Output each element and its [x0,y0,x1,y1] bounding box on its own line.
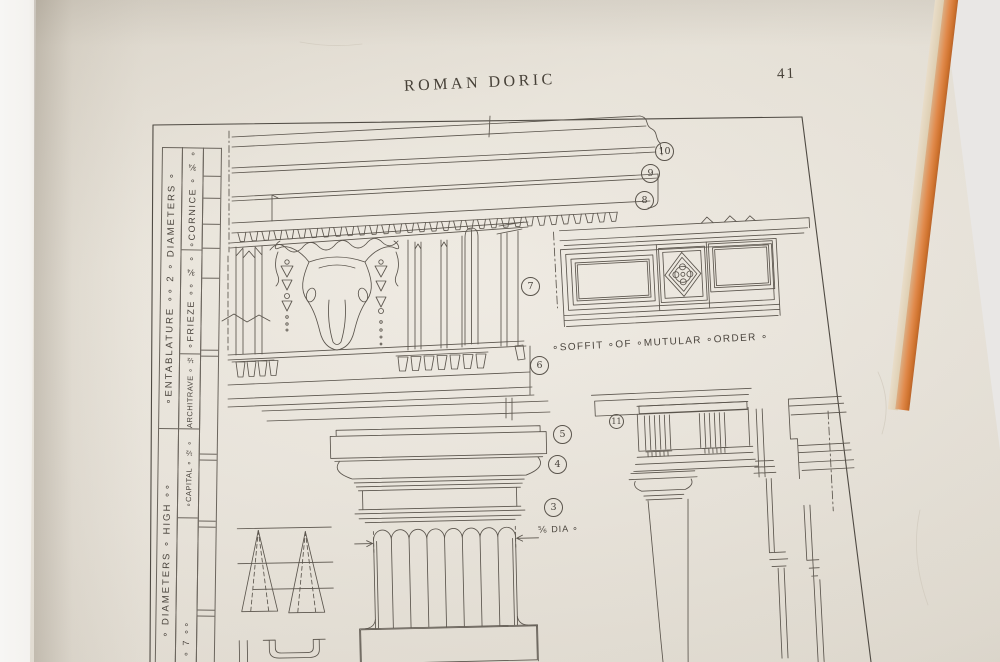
scale-label: ∘SHAFT ∘ 7 ∘∘ [180,620,191,662]
frieze-flat-band [465,228,478,345]
triglyph-right [408,236,462,350]
callout-5: 5 [553,425,572,444]
architrave-right-return [506,346,530,420]
anta-capital [751,408,776,477]
triglyph-channel-profile [239,639,325,662]
callout-8: 8 [635,191,654,210]
edge-order-fragment [788,396,864,662]
plate-border [150,116,871,662]
scale-cell-architrave: ARCHITRAVE ∘ ½ [179,354,200,429]
frieze-drawing [222,222,524,355]
guttae-left [232,360,278,377]
scale-label: ∘CORNICE ∘ ¾ ∘ [187,150,198,248]
callout-9: 9 [641,164,660,183]
plate-border-right [802,117,871,662]
triglyph-left [236,246,262,355]
horn-right [365,241,399,262]
small-capital [629,471,698,501]
lower-shaft-flute-lines [361,626,538,662]
edge-entablature [788,396,854,479]
cymatium-lines [232,116,646,147]
paper-marks [300,42,928,605]
callout-10: 10 [655,142,674,161]
diameter-arrows [355,535,539,547]
capital-drawing [330,426,551,662]
bucranium [270,238,399,350]
cone-rule-lines [237,527,333,590]
coffer-inner [663,250,703,298]
scale-label: ∘ DIAMETERS ∘ HIGH ∘∘ [160,482,173,638]
mutule-guttae-row [232,212,618,242]
small-shaft [648,499,695,662]
scale-label: ∘ENTABLATURE ∘∘ 2 ∘ DIAMETERS ∘ [163,171,177,405]
husk-pendant-left [281,260,293,331]
scale-label: ∘CAPITAL ∘ ½ ∘ [183,440,193,507]
callout-6: 6 [530,356,549,375]
husk-pendant-right [375,260,387,345]
cone-2 [287,531,324,613]
plate-border-left [150,125,153,662]
shaft-diameter-label: ⅚ DIA ∘ [538,523,579,535]
callout-4: 4 [548,455,567,474]
nasal-ridge [319,265,355,345]
fillet-lines [232,147,656,173]
annulets [354,479,524,491]
soffit-bottom-band [564,304,780,326]
lower-shaft-block [360,625,539,662]
guttae-right [396,352,488,371]
scale-cell-capital: ∘CAPITAL ∘ ½ ∘ [178,429,199,518]
coffer-diamond [664,251,702,297]
astragal [355,506,525,523]
regula-end-block [515,345,525,360]
plate-drawing [0,0,1000,662]
scale-cell-frieze: ∘FRIEZE ∘∘ ¾ ∘ [180,250,201,354]
callout-7: 7 [521,277,540,296]
small-triglyph-1 [644,415,670,450]
guttae-cone-diagrams [237,527,334,662]
mutule-right-guttae-dots [715,247,769,286]
soffit-detail-drawing [553,212,814,327]
eye-socket-right [357,287,369,303]
soffit-centerline [553,232,557,308]
skull-brow [309,257,365,262]
skull-outline [303,262,372,350]
flute-lines [374,536,518,628]
cone-2-dashed [296,531,315,612]
small-order-elevation [591,387,792,662]
mutule-left-inner [575,259,651,301]
guttae-teeth [238,212,618,242]
taenia-band [228,341,526,360]
anta-wall [766,478,792,659]
break-zigzag [222,314,270,322]
mutule-right-inner [713,245,771,288]
small-triglyph-2 [699,412,725,447]
photo-of-book-plate: ROMAN DORIC 41 [0,0,1000,662]
scale-strips: ∘ENTABLATURE ∘∘ 2 ∘ DIAMETERS ∘ ∘ DIAMET… [154,147,224,662]
eye-socket-left [305,287,317,303]
cone-1 [240,530,277,612]
scale-label: ARCHITRAVE ∘ ½ [185,355,195,428]
cornice-section-drawing [230,116,662,248]
frieze-corner-band [497,222,524,346]
edge-pier [804,505,824,662]
architrave-fasciae [228,372,534,407]
callout-11: 11 [609,414,624,429]
cone-1-dashed [249,530,268,611]
callout-3: 3 [544,498,563,517]
corona-top-lines [232,174,658,201]
plate-border-top [153,117,802,125]
scale-cell-shaft: ∘SHAFT ∘ 7 ∘∘ [175,518,198,662]
scale-cell-cornice: ∘CORNICE ∘ ¾ ∘ [182,148,203,250]
mutule-left-guttae-dots [577,261,649,299]
abacus [330,426,547,459]
soffit-panel-inner [566,244,775,311]
scale-label: ∘FRIEZE ∘∘ ¾ ∘ [185,255,196,350]
architrave-drawing [228,341,550,421]
echinus [335,457,543,480]
